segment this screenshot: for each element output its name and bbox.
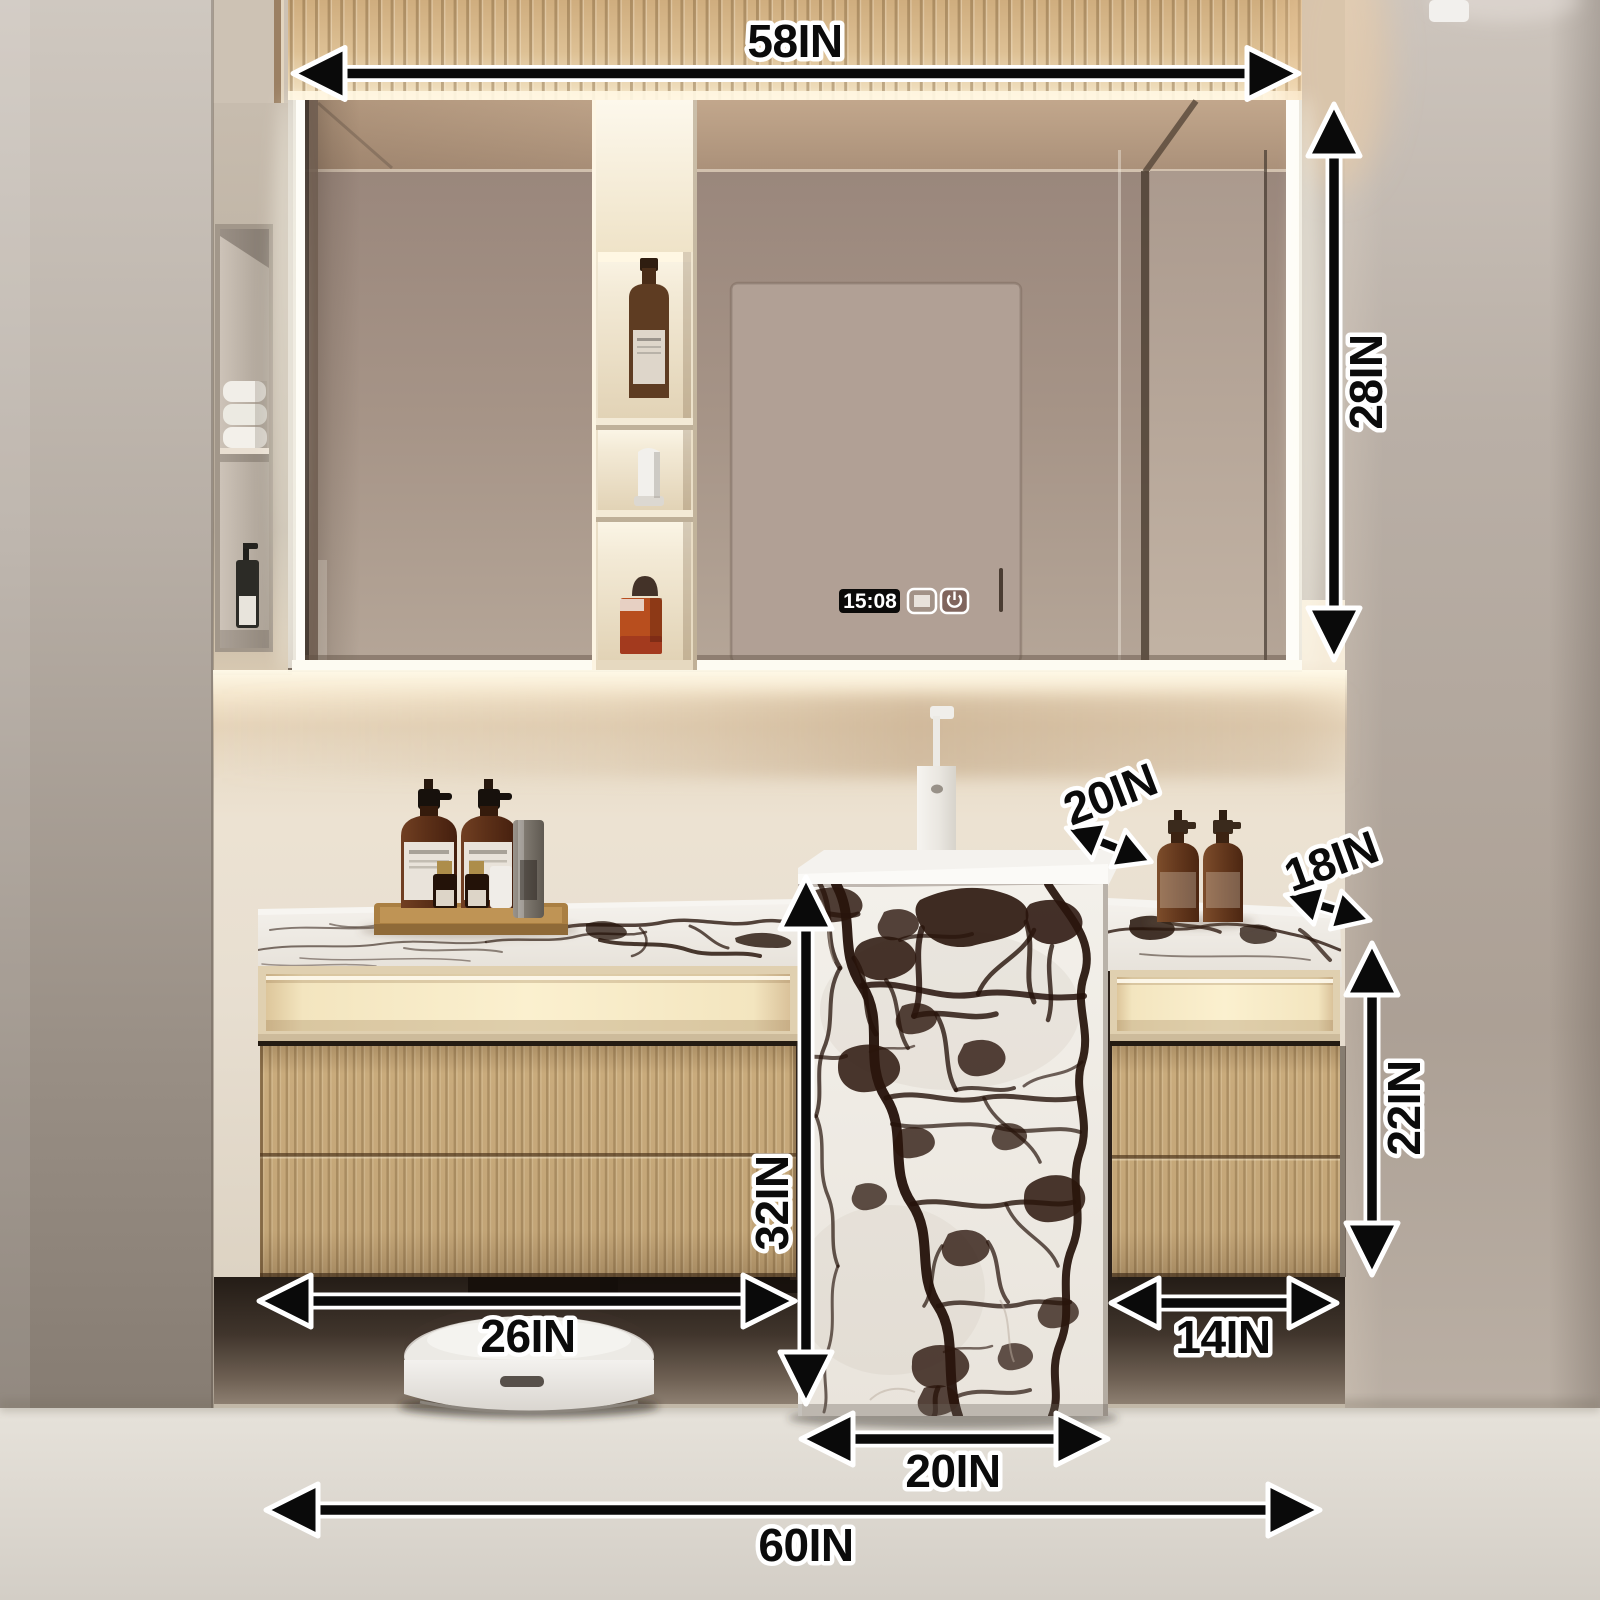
svg-text:32IN: 32IN — [746, 1155, 798, 1250]
svg-text:60IN: 60IN — [758, 1519, 853, 1571]
svg-text:58IN: 58IN — [747, 15, 842, 67]
svg-text:15:08: 15:08 — [843, 590, 897, 613]
svg-text:22IN: 22IN — [1378, 1060, 1430, 1155]
svg-text:20IN: 20IN — [905, 1445, 1000, 1497]
svg-text:14IN: 14IN — [1175, 1311, 1270, 1363]
svg-text:28IN: 28IN — [1340, 334, 1392, 429]
svg-text:26IN: 26IN — [480, 1310, 575, 1362]
